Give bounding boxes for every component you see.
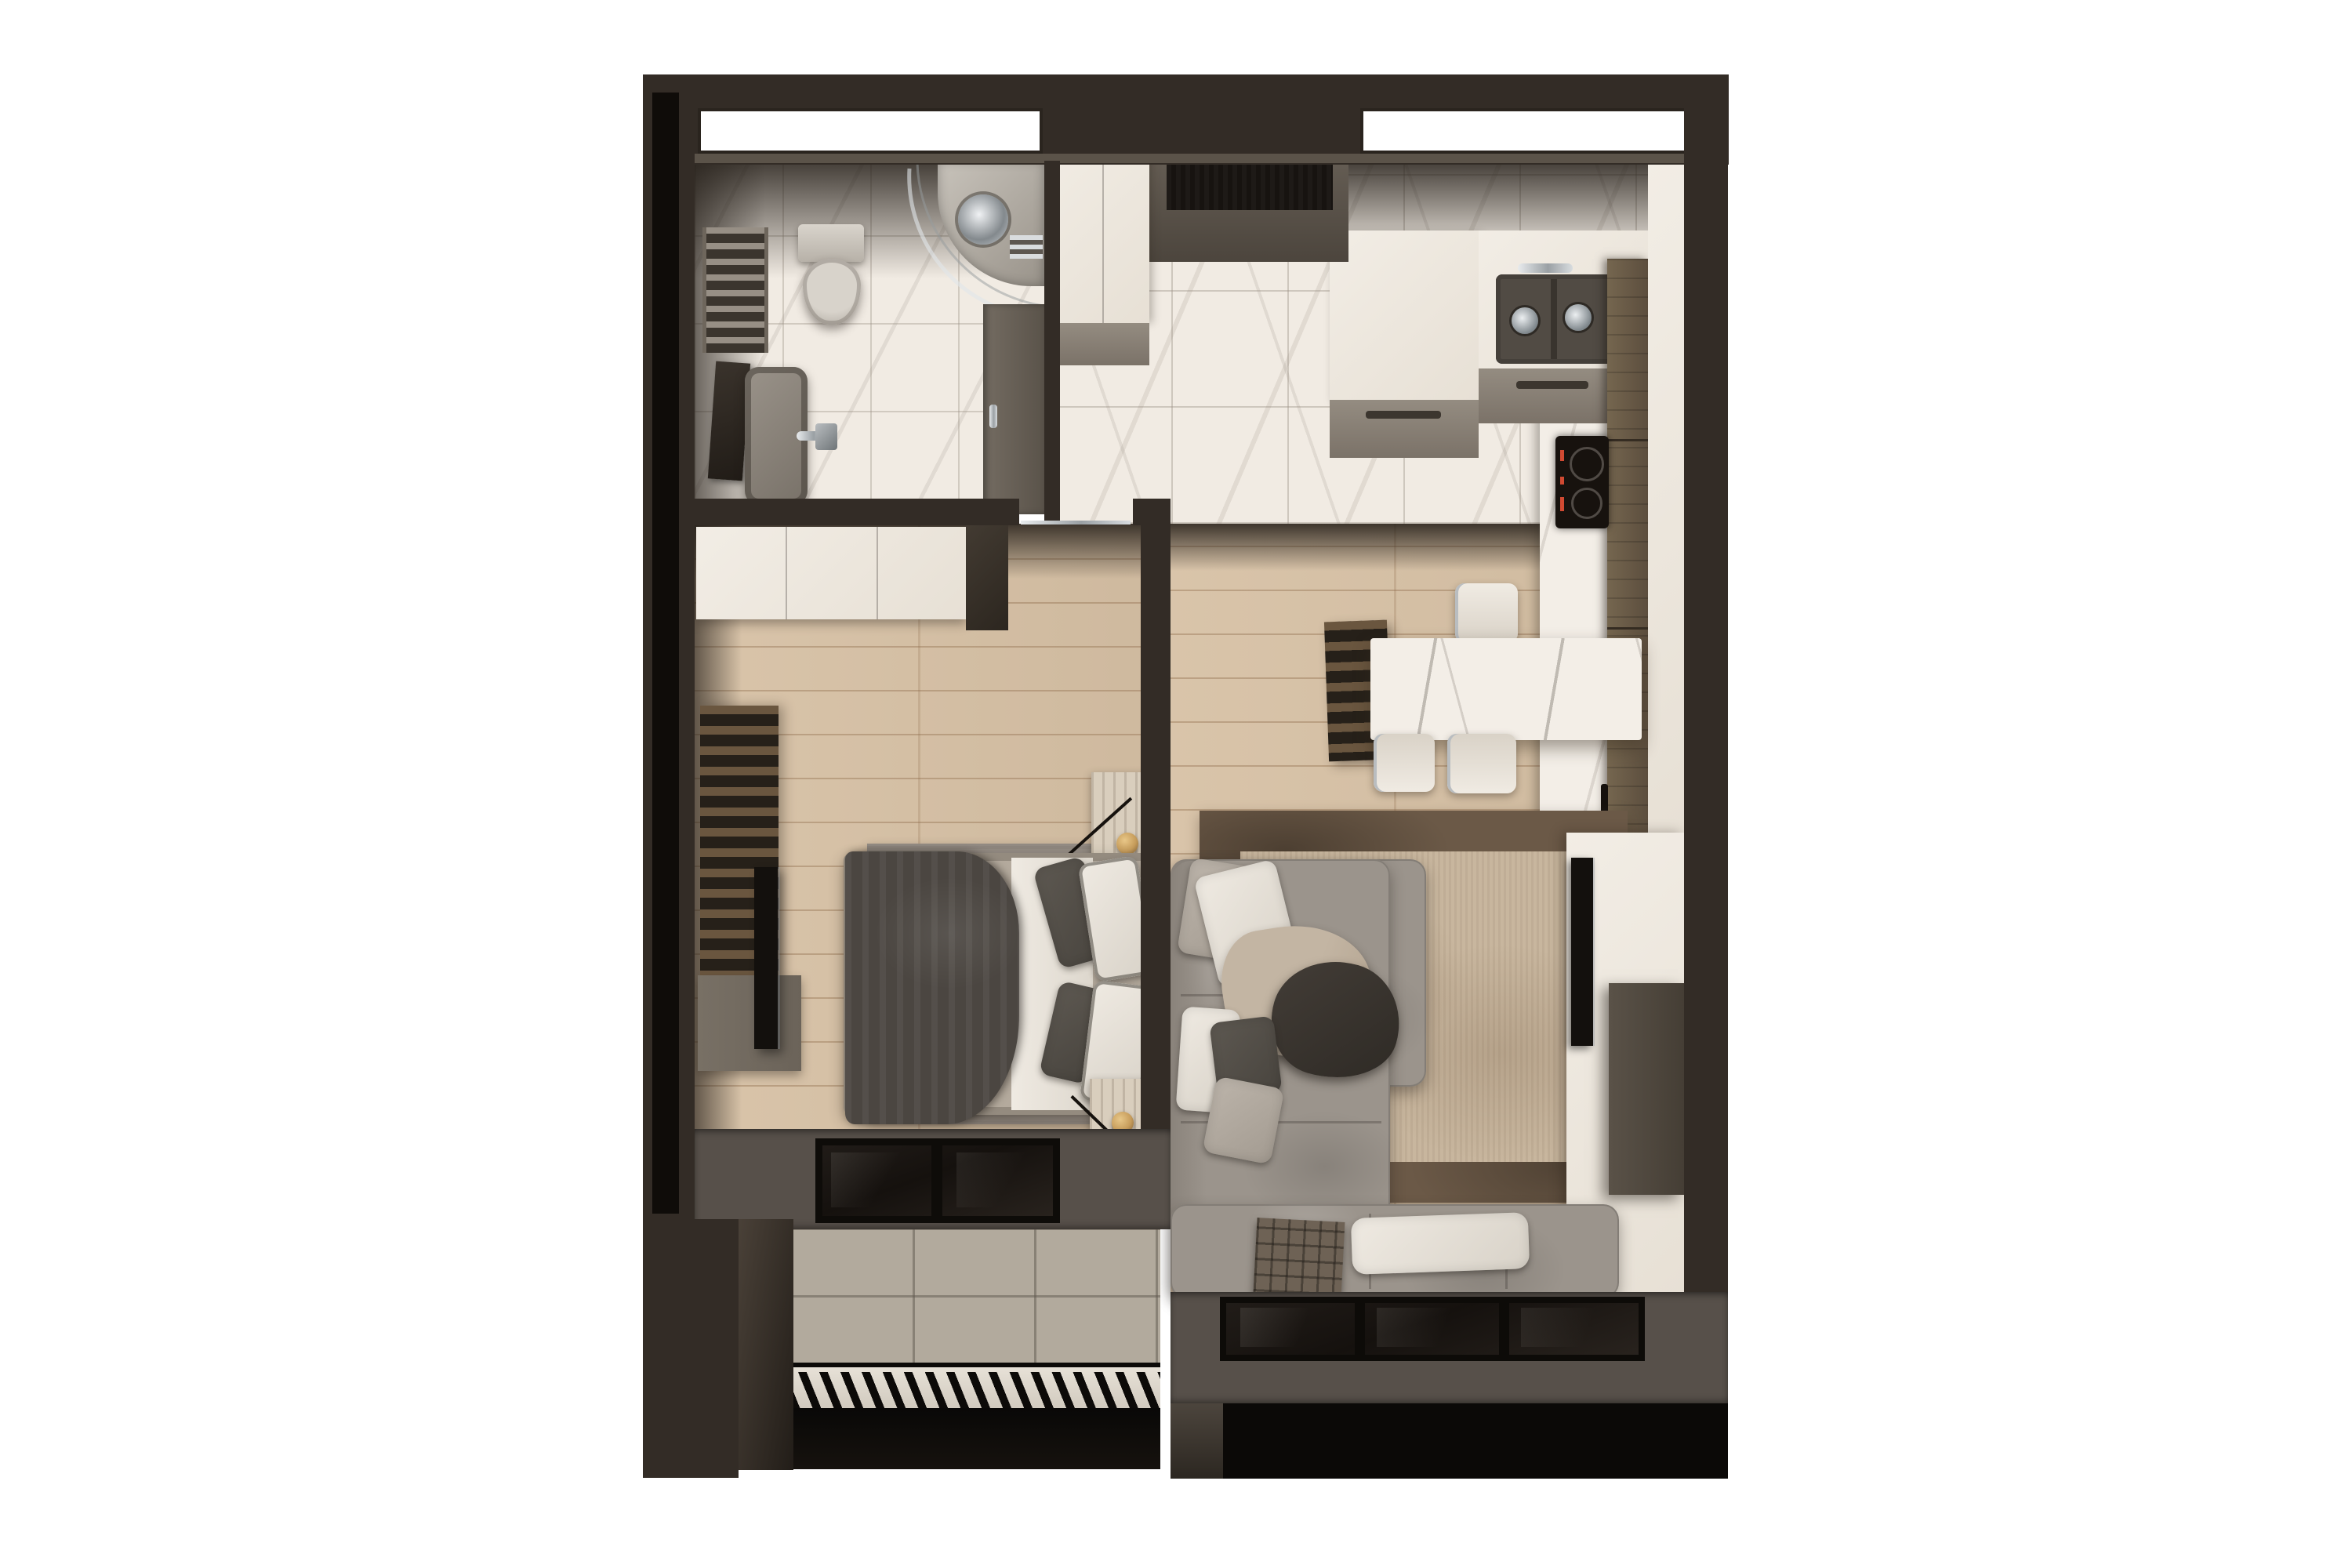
bedroom-north-wall [695,499,1019,525]
dining-table [1370,638,1642,740]
hob-burner-icon [1570,447,1604,481]
toilet-tank [798,224,864,262]
balcony-side-wall-face [739,1219,793,1470]
wardrobe-seam [786,527,787,619]
hall-closet-front [1058,323,1149,365]
towel-radiator [702,227,768,353]
table-lamp-icon [1116,833,1138,855]
sink-strainer-icon [1512,307,1538,334]
bedroom-balcony-window [815,1138,1060,1223]
living-tv [1571,858,1593,1046]
bathroom-window [698,108,1043,154]
basin-faucet-icon [815,423,837,450]
window-reflection [831,1152,917,1207]
bathroom-door-handle-icon [989,405,997,428]
dining-chair [1455,583,1518,643]
hob-red-indicator [1560,477,1564,485]
window-reflection [1240,1308,1334,1347]
kitchen-cabinet-front [1330,400,1479,458]
balcony-side-wall [643,1219,739,1478]
window-mullion [931,1138,942,1223]
window-mullion [1499,1297,1509,1361]
hob-red-indicator [1560,450,1564,461]
bedroom-tv [754,867,778,1049]
kitchen-cabinet-front [1479,368,1618,423]
kitchen-window [1360,108,1690,154]
balcony-railing [793,1363,1160,1413]
kitchen-cabinet-block [1330,230,1479,400]
kitchen-wall-panel [1648,161,1684,833]
kitchen-tall-cabinets [1607,259,1648,833]
tall-cabinet-seam [1607,439,1648,441]
sofa-pillow [1202,1076,1284,1165]
kitchen-faucet-icon [1518,263,1573,273]
bedroom-living-wall [1141,499,1171,1129]
wardrobe [696,527,966,619]
bedroom-tv-console [698,975,801,1071]
dining-chair [1374,734,1435,792]
wardrobe-seam [877,527,878,619]
left-wall-shadow [652,93,679,1214]
top-wall-inner-face [695,154,1684,163]
sofa-pillow [1351,1212,1530,1275]
right-wall [1684,74,1728,1337]
living-balcony-window [1220,1297,1645,1361]
dining-chair [1447,734,1516,793]
tall-cabinet-seam [1607,627,1648,630]
bed-duvet [845,851,1019,1124]
window-reflection [1521,1308,1623,1347]
cabinet-handle [1366,411,1441,419]
floor-plan-render [0,0,2352,1568]
living-balcony-dark [1223,1403,1728,1479]
induction-hob [1555,436,1609,528]
wardrobe-side-panel [966,508,1008,630]
railing-slats-icon [793,1372,1160,1413]
bathroom-hall-wall [1044,161,1060,524]
window-mullion [1355,1297,1365,1361]
hob-burner-icon [1571,488,1602,519]
cabinet-handle [1516,381,1588,389]
window-reflection [1377,1308,1479,1347]
balcony-shadow [793,1408,1160,1469]
living-balcony-ledge [1171,1403,1223,1479]
sink-strainer-icon [1565,304,1592,331]
hob-red-indicator [1560,497,1564,511]
media-console [1609,983,1684,1195]
sliding-door-track-icon [1021,521,1131,524]
window-reflection [956,1152,1043,1207]
sink-bowl-divider [1551,279,1557,359]
bedroom-balcony-floor [793,1229,1160,1363]
